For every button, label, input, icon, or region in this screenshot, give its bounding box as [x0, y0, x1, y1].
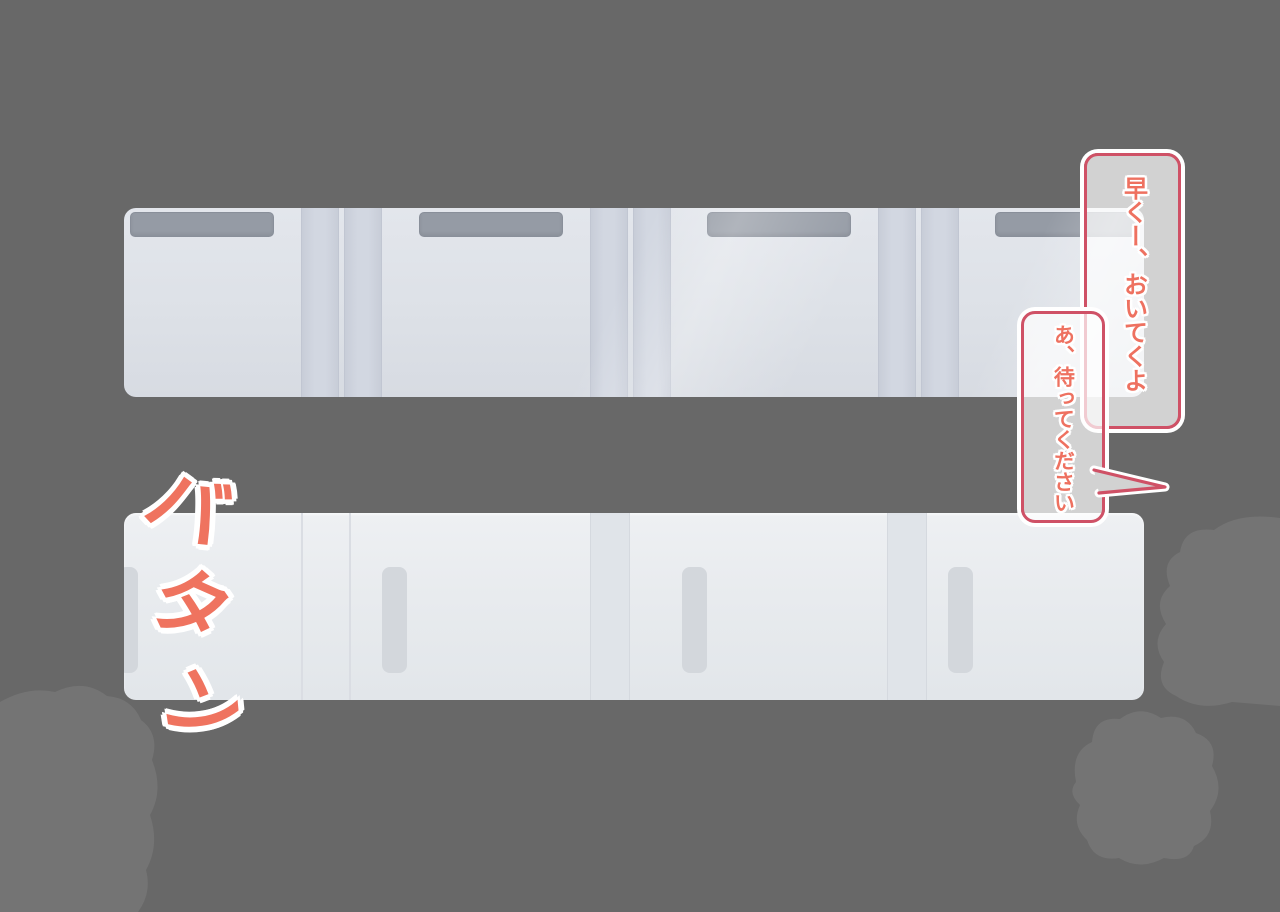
speech-bubble-2-text: あ、待ってください	[1052, 314, 1075, 520]
door-handle	[382, 567, 407, 673]
speech-bubble-1-text: 早くー、おいてくよ	[1120, 156, 1146, 426]
window-reflection	[124, 208, 1144, 397]
dust-cloud-right-top	[1157, 517, 1280, 707]
comic-panel: バ タ ン 早くー、おいてくよ あ、待ってください	[0, 0, 1280, 912]
dust-cloud-bottom-left	[0, 686, 158, 912]
door-seam	[349, 513, 351, 700]
dust-cloud-right-bottom	[1072, 711, 1218, 864]
sfx-char: ン	[147, 647, 282, 779]
door-handle	[124, 567, 138, 673]
speech-bubble-tail	[1086, 458, 1178, 502]
door-handle	[682, 567, 707, 673]
upper-train-car	[124, 208, 1144, 397]
door-handle	[948, 567, 973, 673]
train-door	[590, 513, 630, 700]
door-seam	[301, 513, 303, 700]
sfx-batan: バ タ ン	[146, 468, 266, 762]
lower-train-car	[124, 513, 1144, 700]
train-door	[887, 513, 927, 700]
